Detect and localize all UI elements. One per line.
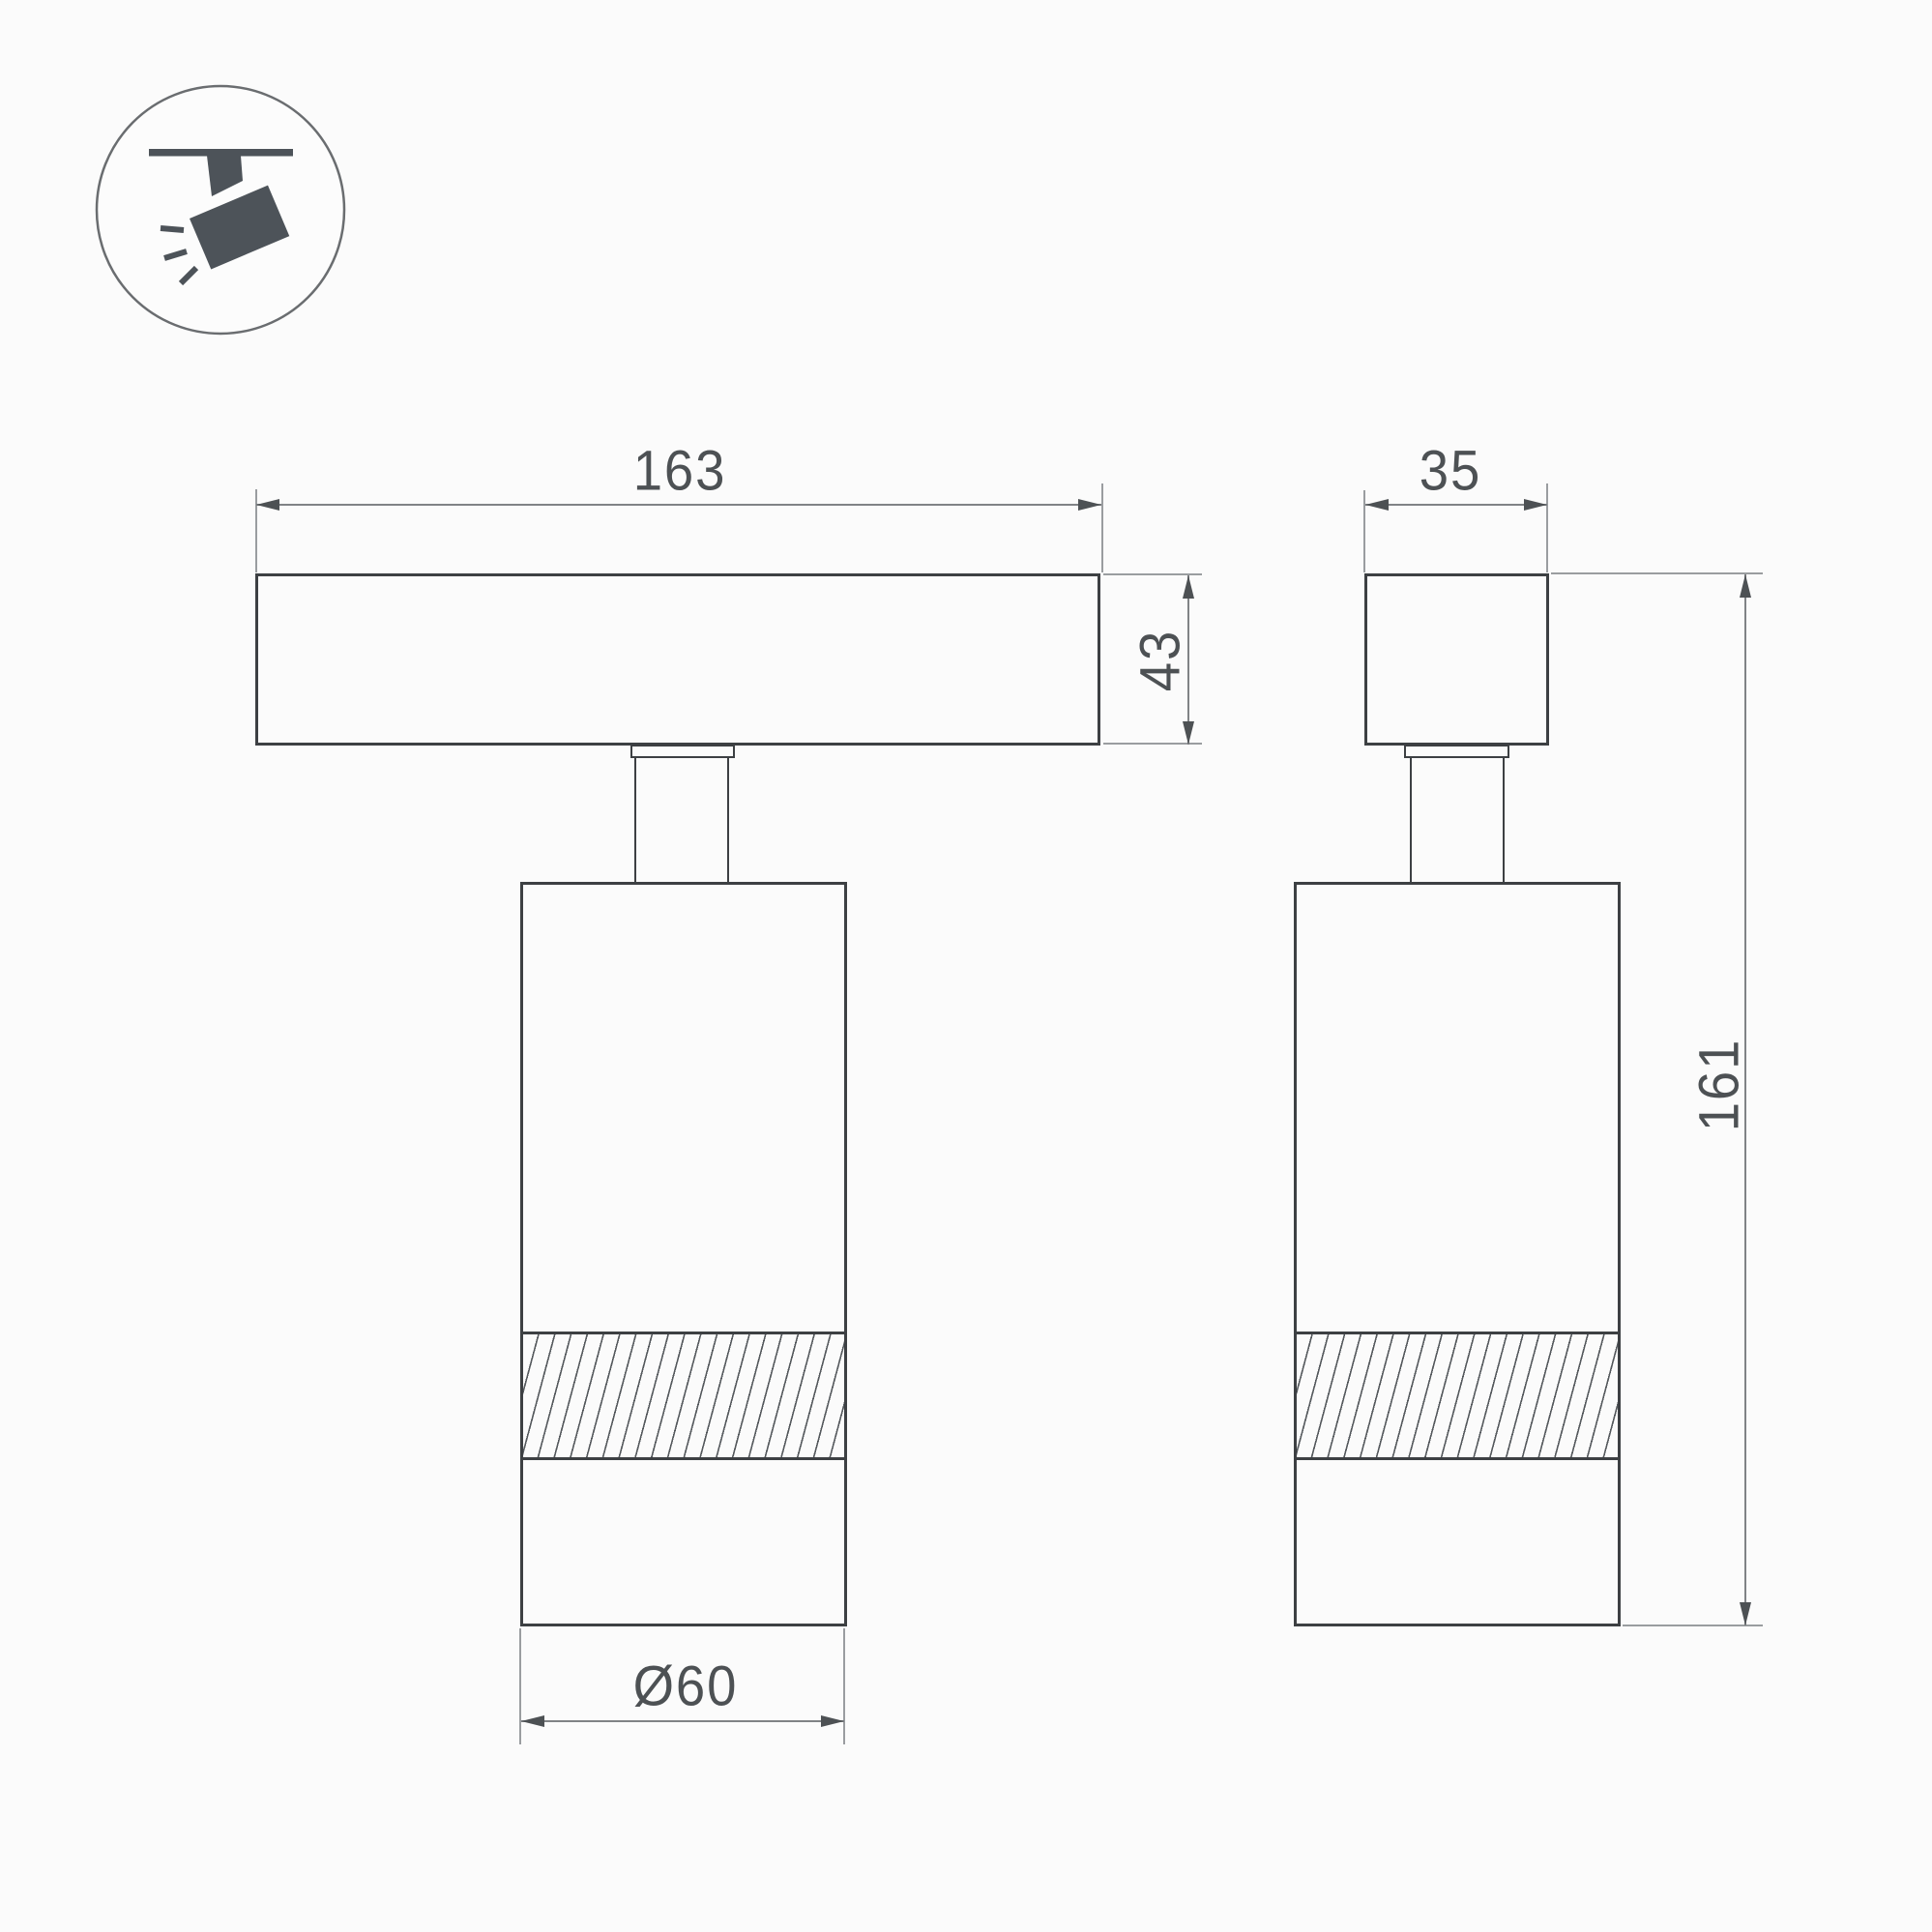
front-mount-flange <box>630 745 735 758</box>
dim-163-arrow-left <box>256 499 279 511</box>
dim-d60-arrow-left <box>521 1715 544 1727</box>
side-knurled-band <box>1297 1332 1618 1460</box>
dim-161-arrow-bottom <box>1740 1602 1751 1625</box>
front-track-base <box>255 573 1100 746</box>
dim-35-arrow-left <box>1365 499 1389 511</box>
dim-163-line <box>256 504 1101 506</box>
dim-label-track-length: 163 <box>633 439 727 504</box>
dim-label-fixture-height: 161 <box>1687 1039 1752 1132</box>
dim-d60-ext-left <box>519 1628 521 1744</box>
icon-track-bar <box>149 149 293 157</box>
front-lamp-body <box>520 882 847 1626</box>
dim-163-arrow-right <box>1078 499 1101 511</box>
dim-161-ext-top <box>1551 572 1763 574</box>
side-track-base <box>1364 573 1549 746</box>
side-swivel-stem <box>1410 758 1505 883</box>
technical-drawing: 163 43 Ø60 35 161 <box>0 0 1932 1932</box>
track-spotlight-icon <box>94 83 347 337</box>
dim-label-body-diameter: Ø60 <box>633 1654 739 1719</box>
front-knurled-band <box>523 1332 844 1460</box>
dim-161-arrow-top <box>1740 574 1751 598</box>
dim-163-ext-right <box>1101 483 1103 572</box>
side-lamp-body <box>1294 882 1621 1626</box>
dim-43-arrow-bottom <box>1183 721 1194 745</box>
dim-35-ext-right <box>1546 483 1548 572</box>
track-spotlight-icon-svg <box>94 83 347 337</box>
dim-d60-ext-right <box>843 1628 845 1744</box>
dim-label-track-height: 43 <box>1128 629 1193 691</box>
side-mount-flange <box>1404 745 1509 758</box>
dim-35-line <box>1365 504 1547 506</box>
dim-43-arrow-top <box>1183 575 1194 599</box>
dim-35-arrow-right <box>1524 499 1547 511</box>
dim-d60-line <box>521 1720 844 1722</box>
dim-d60-arrow-right <box>821 1715 844 1727</box>
dim-label-track-width: 35 <box>1420 439 1481 504</box>
front-swivel-stem <box>634 758 729 883</box>
